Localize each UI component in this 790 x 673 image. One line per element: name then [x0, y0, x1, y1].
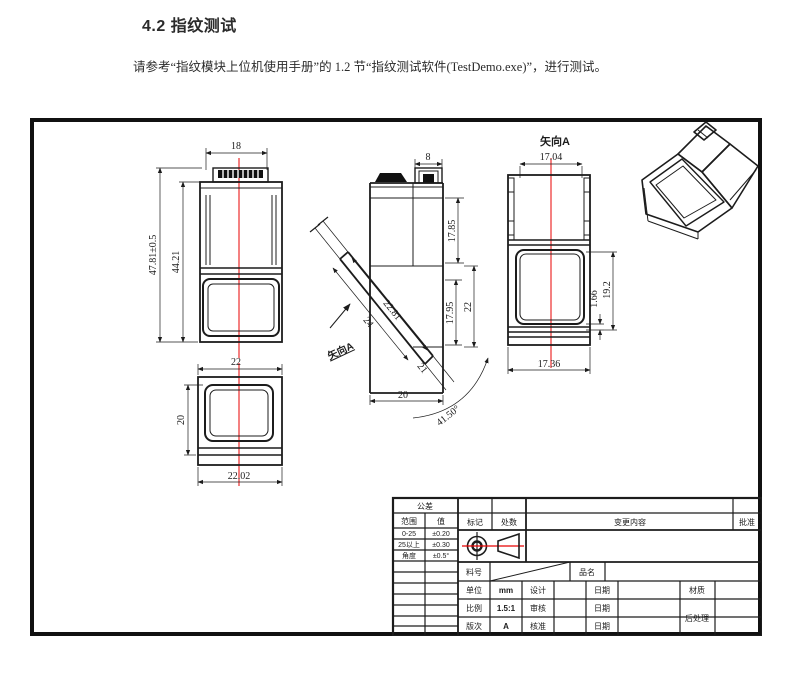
- dim-front-height-inner: 44.21: [171, 251, 182, 274]
- revision-content: 变更内容: [614, 517, 646, 527]
- isometric-view: [642, 122, 758, 239]
- tolerance-range-2: 25以上: [398, 540, 420, 549]
- field-product-name: 品名: [579, 567, 595, 577]
- engineering-drawing: 18 47.81±0.5 44.21: [30, 118, 762, 636]
- document-page: 4.2 指纹测试 请参考“指纹模块上位机使用手册”的 1.2 节“指纹测试软件(…: [0, 0, 790, 673]
- drawing-frame: [32, 120, 760, 634]
- revision-approve: 批准: [739, 517, 755, 527]
- side-view: 8 22.: [310, 152, 488, 429]
- revision-mark: 标记: [467, 517, 483, 527]
- dim-side-upper-height: 17.85: [447, 220, 458, 243]
- projection-symbol-icon: [462, 532, 524, 560]
- field-unit: 单位: [466, 585, 482, 595]
- field-version: 版次: [466, 621, 482, 631]
- dim-side-bottom-width: 20: [398, 390, 408, 401]
- dim-rear-window-offset: 1.66: [589, 290, 600, 308]
- tolerance-value-2: ±0.30: [432, 542, 450, 549]
- bottom-view: 22 20 22.02: [176, 357, 282, 486]
- dim-rear-window-height: 19.2: [602, 281, 613, 299]
- tolerance-header: 公差: [417, 501, 433, 511]
- dim-bottom-width-bottom: 22.02: [228, 471, 251, 482]
- dim-bottom-height: 20: [176, 415, 187, 425]
- revision-count: 处数: [501, 517, 517, 527]
- tolerance-range-1: 0-25: [402, 531, 416, 538]
- dim-side-total-height: 22: [463, 302, 474, 312]
- field-unit-value: mm: [499, 586, 513, 595]
- dim-side-lower-height: 17.95: [445, 302, 456, 325]
- dim-bottom-width-top: 22: [231, 357, 241, 368]
- tolerance-value-1: ±0.20: [432, 531, 450, 538]
- field-date-2: 日期: [594, 604, 610, 613]
- field-version-value: A: [503, 622, 509, 631]
- field-review: 审核: [530, 603, 546, 613]
- tolerance-value-3: ±0.5°: [433, 552, 450, 560]
- field-date-1: 日期: [594, 586, 610, 595]
- dim-side-face-end: 21: [415, 361, 430, 376]
- title-block: 公差 范围 值 0-25 ±0.20 25以上 ±0.30 角度 ±0.5° 标…: [393, 498, 762, 636]
- field-date-3: 日期: [594, 622, 610, 631]
- dim-side-connector: 8: [426, 152, 431, 163]
- field-scale: 比例: [466, 603, 482, 613]
- tolerance-col-value: 值: [437, 516, 445, 526]
- dim-rear-width-top: 17.04: [540, 152, 563, 163]
- rear-view: 矢向A 17.04 1.66: [508, 134, 617, 374]
- tolerance-range-3: 角度: [402, 551, 416, 560]
- tolerance-col-range: 范围: [401, 516, 417, 526]
- front-view: 18 47.81±0.5 44.21: [148, 141, 282, 358]
- section-heading: 4.2 指纹测试: [142, 12, 237, 36]
- side-view-arrow-label: 矢向A: [325, 339, 355, 362]
- field-part-no: 料号: [466, 567, 482, 577]
- field-scale-value: 1.5:1: [497, 604, 516, 613]
- field-design: 设计: [530, 585, 546, 595]
- field-check: 核准: [530, 621, 546, 631]
- dim-side-angle: 41.50°: [435, 404, 463, 429]
- field-post-process: 后处理: [685, 613, 709, 623]
- dim-rear-width-bottom: 17.36: [538, 359, 561, 370]
- field-material: 材质: [689, 585, 705, 595]
- dim-side-face-inner: 22.81: [381, 298, 404, 322]
- rear-view-label: 矢向A: [540, 134, 570, 148]
- dim-front-height-outer: 47.81±0.5: [148, 235, 159, 276]
- dim-front-width: 18: [231, 141, 241, 152]
- section-body-text: 请参考“指纹模块上位机使用手册”的 1.2 节“指纹测试软件(TestDemo.…: [133, 56, 607, 75]
